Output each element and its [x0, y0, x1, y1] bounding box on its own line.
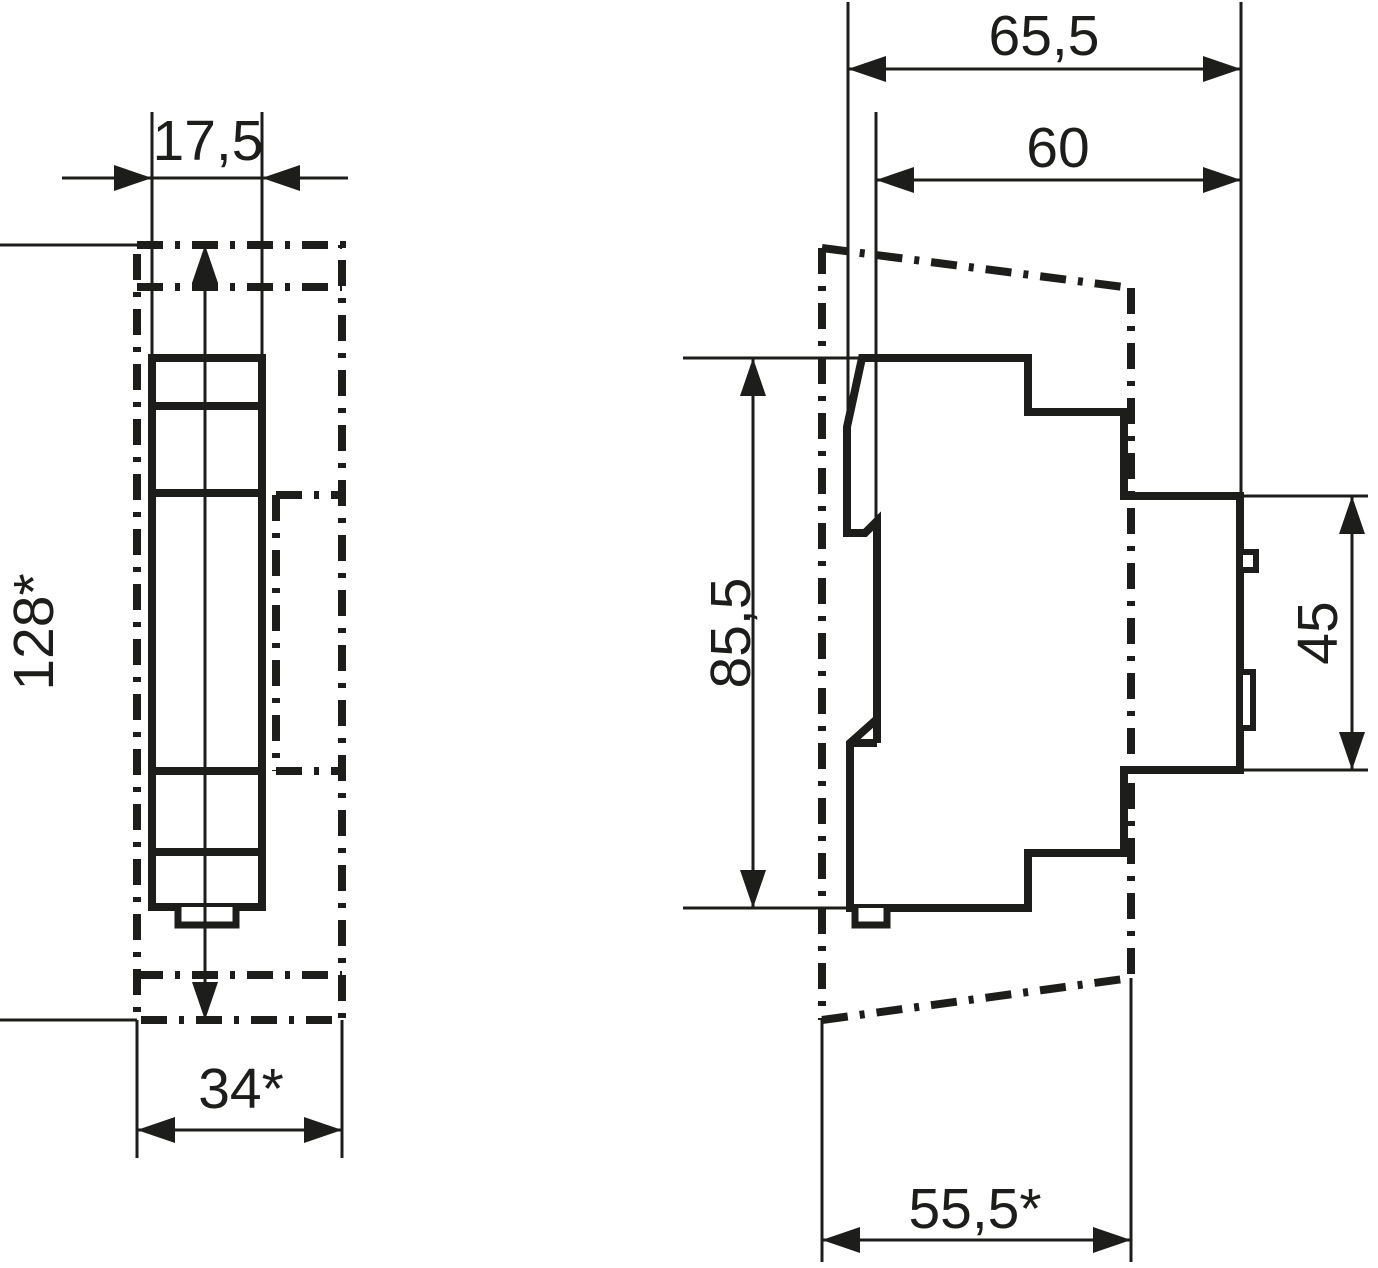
- side-view-device: [847, 358, 1256, 925]
- dim-label-overall-depth: 65,5: [989, 4, 1100, 68]
- drawing-canvas: 17,5 128* 34*: [0, 0, 1378, 1268]
- dim-label-overall-height: 128*: [2, 573, 66, 690]
- arrowhead: [137, 1117, 175, 1143]
- arrowhead: [1203, 167, 1241, 193]
- module-front-section-lines: [152, 406, 262, 852]
- dim-label-front-height: 45: [1286, 601, 1350, 664]
- module-side-profile: [847, 358, 1240, 908]
- arrowhead: [1339, 732, 1365, 770]
- front-view: 17,5 128* 34*: [0, 109, 348, 1158]
- terminal-slot: [1240, 672, 1253, 728]
- front-view-device: [152, 358, 262, 925]
- arrowhead: [822, 1227, 860, 1253]
- dim-label-cutout-depth: 55,5*: [908, 1177, 1041, 1241]
- dim-label-depth: 60: [1026, 116, 1089, 180]
- arrowhead: [192, 245, 218, 283]
- arrowhead: [304, 1117, 342, 1143]
- arrowhead: [848, 56, 886, 82]
- arrowhead: [1093, 1227, 1131, 1253]
- din-clip-tab-front: [178, 907, 236, 925]
- arrowhead: [1203, 56, 1241, 82]
- arrowhead: [740, 358, 766, 396]
- dim-label-module-width: 17,5: [153, 109, 264, 173]
- arrowhead: [262, 165, 300, 191]
- arrowhead: [192, 982, 218, 1020]
- arrowhead: [876, 167, 914, 193]
- side-view-dimensions: 65,5 60 85,5 45: [683, 2, 1368, 1262]
- arrowhead: [114, 165, 152, 191]
- dim-label-body-height: 85,5: [699, 578, 763, 689]
- din-clip-tab-side: [855, 908, 887, 925]
- side-view: 65,5 60 85,5 45: [683, 2, 1368, 1262]
- arrowhead: [1339, 496, 1365, 534]
- panel-top-slant-phantom: [822, 248, 1131, 288]
- front-view-dimensions: 17,5 128* 34*: [0, 109, 348, 1158]
- dim-label-cutout-width: 34*: [198, 1057, 284, 1121]
- panel-cutout-phantom: [276, 495, 342, 771]
- panel-bottom-slant-phantom: [822, 978, 1131, 1020]
- din-module-dimension-drawing: 17,5 128* 34*: [0, 0, 1378, 1268]
- module-front-outline: [152, 358, 262, 907]
- terminal-screw: [1240, 552, 1256, 570]
- arrowhead: [740, 870, 766, 908]
